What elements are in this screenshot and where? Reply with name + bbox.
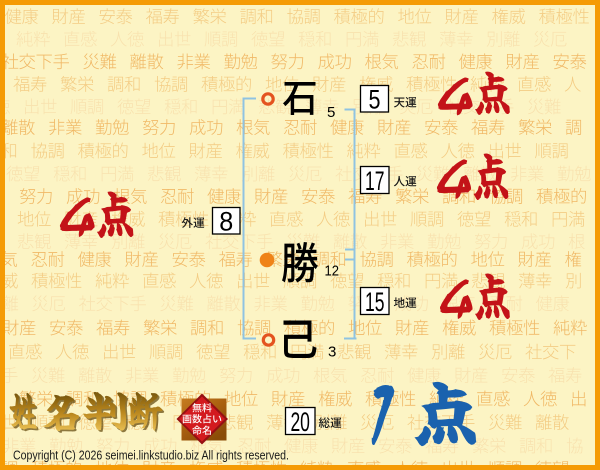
svg-text:5: 5 (369, 85, 381, 115)
svg-text:20: 20 (290, 407, 310, 437)
svg-text:12: 12 (325, 263, 340, 280)
svg-text:Copyright (C) 2026 seimei.link: Copyright (C) 2026 seimei.linkstudio.biz… (13, 448, 289, 463)
svg-text:15: 15 (365, 287, 385, 317)
svg-text:17: 17 (365, 166, 385, 196)
svg-text:3: 3 (328, 344, 336, 361)
svg-text:5: 5 (327, 104, 335, 121)
svg-text:8: 8 (219, 207, 233, 237)
